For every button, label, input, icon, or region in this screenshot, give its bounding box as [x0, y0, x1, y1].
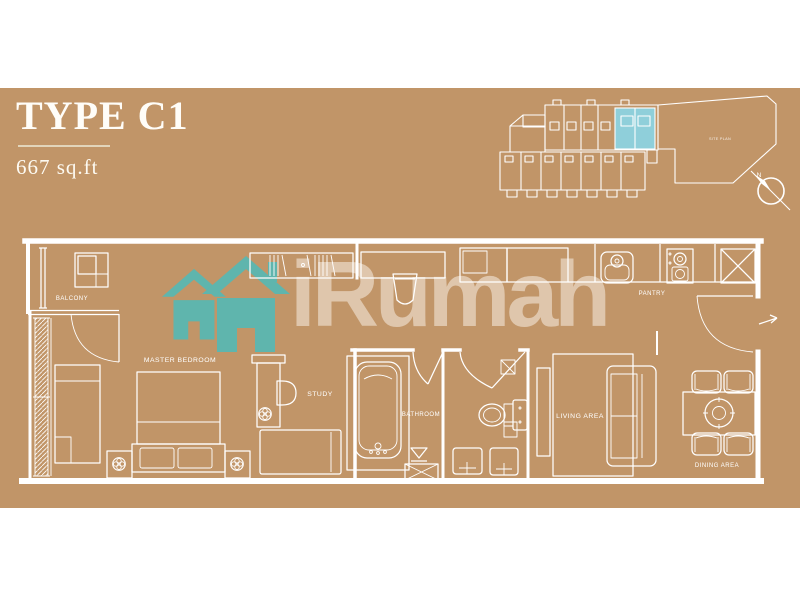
title-divider [18, 145, 110, 147]
toilet [479, 400, 527, 430]
living-area-label: LIVING AREA [556, 413, 604, 420]
floor-trap-icon [411, 448, 427, 461]
unit-area-label: 667 sq.ft [16, 155, 189, 180]
title-block: TYPE C1 667 sq.ft [16, 96, 189, 180]
pantry: PANTRY [460, 244, 755, 297]
north-label: N [757, 172, 762, 179]
key-plan-bottom-row [500, 152, 645, 197]
walls [22, 241, 761, 481]
daybed [260, 430, 341, 474]
page-background: TYPE C1 667 sq.ft SITE PLAN [0, 0, 800, 600]
floor-plan: BALCONY MASTER BEDROOM [15, 232, 785, 490]
key-plan-site-label: SITE PLAN [709, 137, 731, 141]
entry-arrow-icon [759, 315, 777, 324]
dining-area: DINING AREA [683, 371, 755, 469]
lamp-icon [259, 408, 272, 421]
lamp-icon [231, 458, 244, 471]
top-cabinets [250, 252, 445, 304]
bifold-door [413, 352, 443, 384]
bathroom-label: BATHROOM [402, 412, 440, 418]
study-label: STUDY [307, 391, 333, 398]
tv-console [537, 368, 550, 456]
wardrobe [55, 365, 100, 463]
north-indicator: N [744, 163, 796, 215]
study: STUDY [252, 355, 341, 474]
dining-area-label: DINING AREA [695, 463, 739, 469]
key-plan-left-wing [510, 115, 545, 152]
entry-door [697, 296, 777, 352]
hob [667, 249, 693, 283]
balcony-label: BALCONY [56, 296, 88, 302]
living-area: LIVING AREA [537, 354, 656, 476]
bathtub [355, 362, 401, 458]
page-title: TYPE C1 [16, 96, 189, 136]
master-bedroom-label: MASTER BEDROOM [144, 357, 216, 364]
window-wall [33, 318, 51, 476]
fridge-space [721, 249, 755, 283]
pillow [178, 448, 212, 468]
master-bedroom: MASTER BEDROOM [55, 357, 250, 478]
sofa [607, 366, 656, 466]
dining-chairs [692, 371, 753, 455]
vanity-basins [453, 448, 518, 475]
bed [137, 372, 220, 444]
bathroom: BATHROOM [347, 352, 527, 480]
pantry-label: PANTRY [639, 291, 666, 297]
key-plan-highlight-small [647, 150, 657, 163]
sink [601, 252, 633, 283]
lamp-icon [113, 458, 126, 471]
pillow [140, 448, 174, 468]
